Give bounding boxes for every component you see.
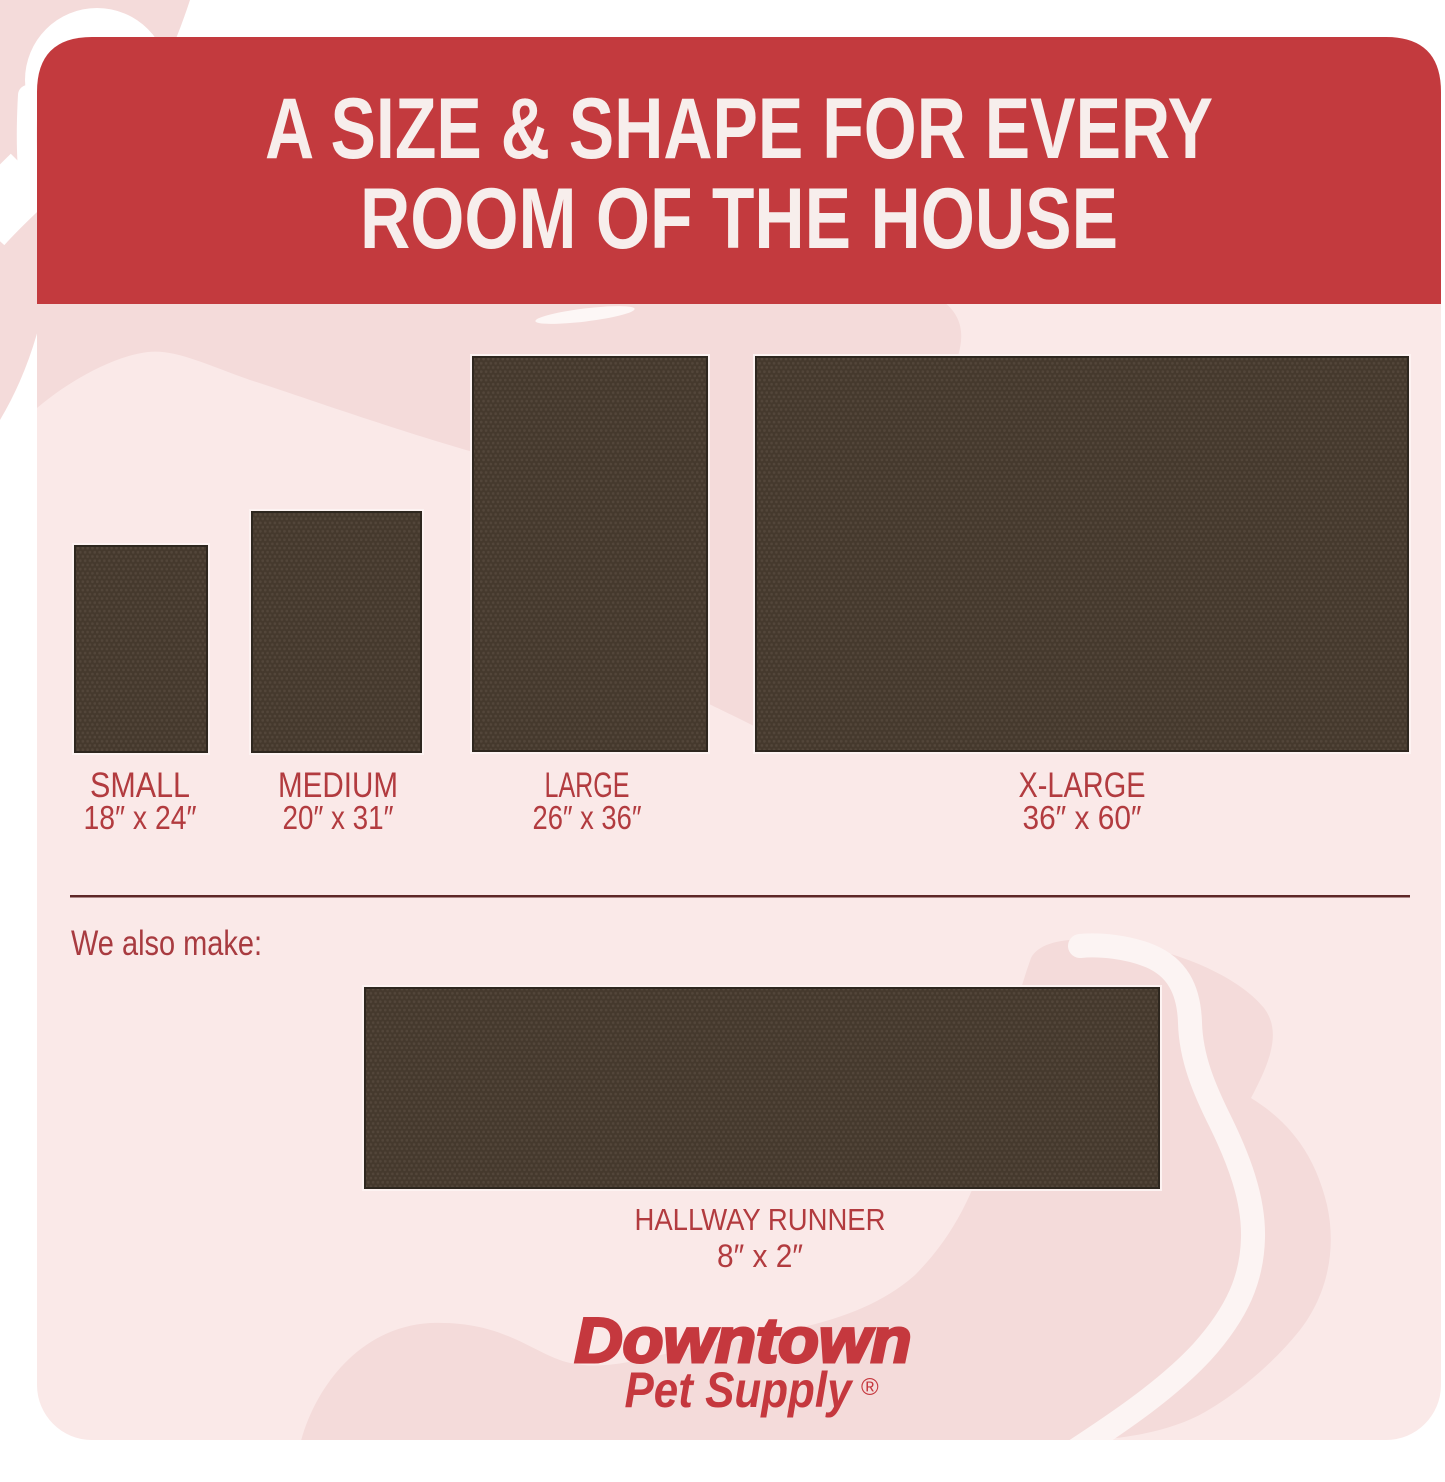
svg-text:8″ x 2″: 8″ x 2″ — [717, 1238, 803, 1274]
svg-text:Pet Supply: Pet Supply — [625, 1362, 854, 1418]
svg-text:A SIZE & SHAPE FOR EVERY: A SIZE & SHAPE FOR EVERY — [265, 81, 1213, 177]
svg-text:®: ® — [861, 1374, 879, 1401]
svg-text:20″ x 31″: 20″ x 31″ — [283, 799, 394, 836]
svg-text:We also make:: We also make: — [71, 924, 262, 963]
svg-text:18″ x 24″: 18″ x 24″ — [84, 799, 197, 836]
svg-text:HALLWAY RUNNER: HALLWAY RUNNER — [635, 1202, 886, 1237]
svg-text:26″ x 36″: 26″ x 36″ — [533, 799, 642, 836]
svg-text:ROOM OF THE HOUSE: ROOM OF THE HOUSE — [360, 171, 1118, 267]
svg-text:36″ x 60″: 36″ x 60″ — [1023, 799, 1142, 836]
